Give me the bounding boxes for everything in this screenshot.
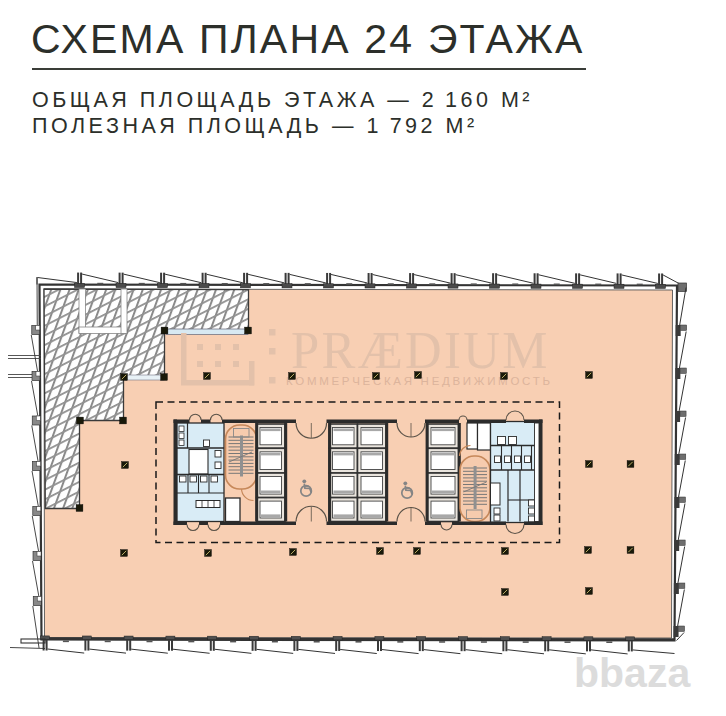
svg-text:PRÆDIUM: PRÆDIUM — [291, 321, 550, 379]
